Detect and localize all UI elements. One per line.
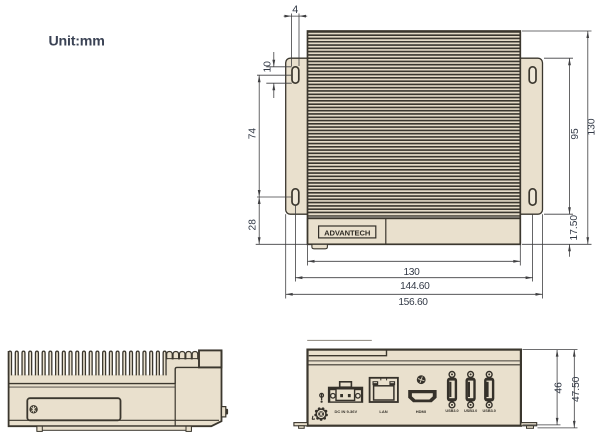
- svg-text:17.50: 17.50: [569, 215, 580, 241]
- svg-text:74: 74: [248, 128, 259, 140]
- svg-text:95: 95: [570, 128, 581, 140]
- svg-text:USB3.0: USB3.0: [445, 409, 458, 413]
- svg-text:LAN: LAN: [379, 409, 387, 414]
- svg-text:ADVANTECH: ADVANTECH: [324, 228, 370, 237]
- svg-text:47.50: 47.50: [571, 376, 582, 402]
- svg-text:130: 130: [403, 267, 420, 278]
- svg-text:46: 46: [553, 382, 564, 394]
- svg-text:USB3.0: USB3.0: [483, 409, 496, 413]
- svg-text:USB3.0: USB3.0: [464, 409, 477, 413]
- svg-text:130: 130: [587, 118, 598, 135]
- svg-text:156.60: 156.60: [398, 297, 428, 308]
- svg-text:4: 4: [292, 4, 298, 16]
- svg-text:Unit:mm: Unit:mm: [49, 34, 105, 50]
- svg-text:10: 10: [263, 61, 274, 73]
- svg-text:DC IN 9-36V: DC IN 9-36V: [334, 409, 357, 414]
- svg-text:28: 28: [248, 219, 259, 231]
- svg-text:144.60: 144.60: [400, 281, 430, 292]
- svg-text:HDMI: HDMI: [416, 409, 426, 414]
